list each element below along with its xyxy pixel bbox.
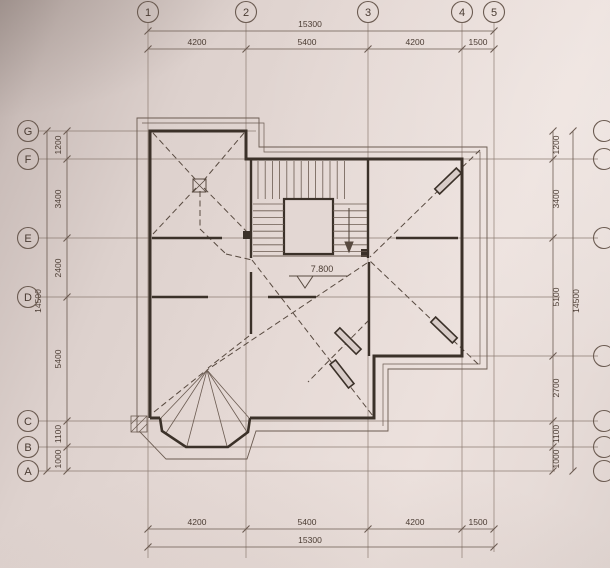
roof-ridge-bar <box>435 168 461 194</box>
dim-top-seg: 1500 <box>469 37 488 47</box>
dim-bottom-seg: 4200 <box>406 517 425 527</box>
dim-right-seg: 1000 <box>551 449 561 468</box>
roof-ridge-bar <box>431 317 457 343</box>
dim-bottom-seg: 1500 <box>469 517 488 527</box>
dim-right-seg: 3400 <box>551 189 561 208</box>
dim-right-total: 14500 <box>571 289 581 313</box>
dim-right-seg: 1200 <box>551 135 561 154</box>
dim-left-seg: 1000 <box>53 449 63 468</box>
corner-pier <box>131 416 147 432</box>
dim-bottom-seg: 4200 <box>188 517 207 527</box>
elevation-marker: 7.800 <box>289 264 347 288</box>
axis-left-A-label: A <box>24 466 32 478</box>
axis-left-E-label: E <box>24 233 31 245</box>
axis-right-1-circle <box>594 121 610 142</box>
stair-well <box>284 199 333 254</box>
blueprint-photo: 1530042005400420015004200540042001500153… <box>0 0 610 568</box>
dim-bottom-seg: 5400 <box>298 517 317 527</box>
dim-bottom-total: 15300 <box>298 535 322 545</box>
grid-lines <box>39 23 598 558</box>
dim-left-seg: 1200 <box>53 135 63 154</box>
axis-left-B-label: B <box>24 442 31 454</box>
bay-roof-fan <box>160 370 250 446</box>
roof-dashed-lines <box>153 133 480 416</box>
dim-top-seg: 4200 <box>406 37 425 47</box>
dim-right-seg: 2700 <box>551 378 561 397</box>
dim-left-seg: 1100 <box>53 425 63 444</box>
axis-top-1-label: 1 <box>145 7 151 19</box>
dim-left-seg: 5400 <box>53 349 63 368</box>
elevation-label: 7.800 <box>311 264 334 274</box>
dim-left-seg: 3400 <box>53 189 63 208</box>
axis-left-G-label: G <box>24 126 33 138</box>
roof-ridge-bar <box>330 360 354 388</box>
walls <box>150 131 462 447</box>
axis-top-2-label: 2 <box>243 7 249 19</box>
floor-plan-drawing: 1530042005400420015004200540042001500153… <box>0 0 610 568</box>
stair-direction-arrow <box>345 208 353 252</box>
dim-left-seg: 2400 <box>53 258 63 277</box>
axis-top-3-label: 3 <box>365 7 371 19</box>
dim-top-seg: 4200 <box>188 37 207 47</box>
dim-top-seg: 5400 <box>298 37 317 47</box>
axis-left-C-label: C <box>24 416 32 428</box>
dim-top-total: 15300 <box>298 19 322 29</box>
roof-eave-outline <box>137 118 487 459</box>
axis-left-F-label: F <box>25 154 32 166</box>
axis-top-5-label: 5 <box>491 7 497 19</box>
dim-right-seg: 5100 <box>551 287 561 306</box>
axis-top-4-label: 4 <box>459 7 465 19</box>
axis-left-D-label: D <box>24 292 32 304</box>
axis-right-7-circle <box>594 461 610 482</box>
dim-right-seg: 1100 <box>551 425 561 444</box>
column-marker <box>243 231 251 239</box>
